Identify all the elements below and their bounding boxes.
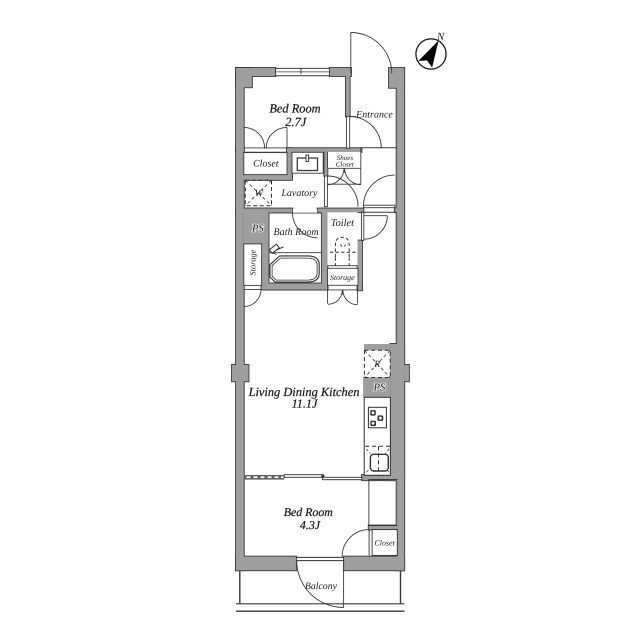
svg-text:Lavatory: Lavatory <box>280 188 318 199</box>
svg-text:N: N <box>436 31 445 43</box>
svg-text:PS: PS <box>373 382 386 393</box>
svg-text:11.1J: 11.1J <box>292 396 318 410</box>
svg-text:Bath Room: Bath Room <box>274 227 319 238</box>
svg-text:R: R <box>373 360 380 370</box>
svg-text:Closet: Closet <box>336 160 355 168</box>
svg-text:Bed Room: Bed Room <box>269 102 320 116</box>
svg-text:Toilet: Toilet <box>331 218 355 229</box>
svg-text:W: W <box>255 189 265 200</box>
svg-text:Closet: Closet <box>253 159 279 170</box>
svg-text:4.3J: 4.3J <box>300 518 321 532</box>
svg-text:Closet: Closet <box>375 539 396 548</box>
svg-text:PS: PS <box>251 223 264 234</box>
svg-text:Storage: Storage <box>248 249 257 275</box>
svg-text:Balcony: Balcony <box>305 581 338 592</box>
svg-text:Bed Room: Bed Room <box>284 505 334 519</box>
svg-text:2.7J: 2.7J <box>285 115 306 129</box>
svg-text:Storage: Storage <box>330 273 355 282</box>
